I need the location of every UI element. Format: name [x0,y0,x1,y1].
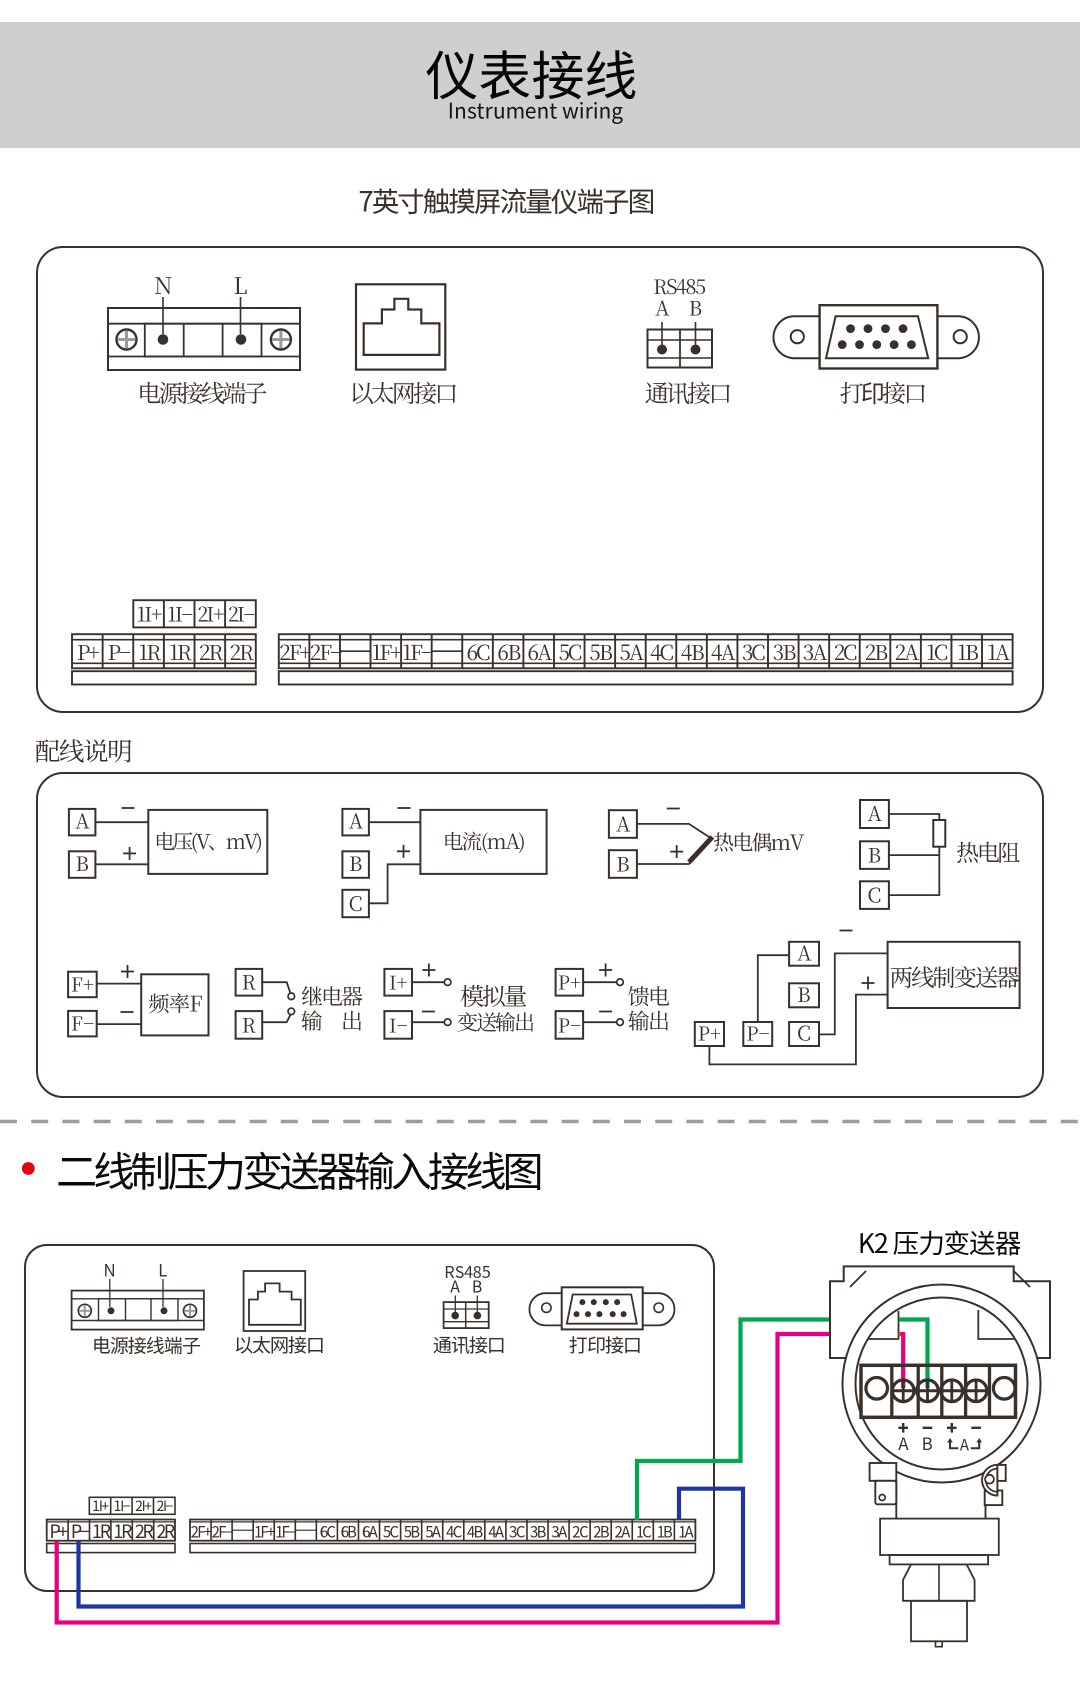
svg-text:1C: 1C [926,637,948,667]
svg-text:P+: P+ [77,637,100,667]
svg-text:C: C [867,880,881,909]
svg-text:4C: 4C [650,637,673,667]
svg-text:P+: P+ [558,969,581,996]
svg-text:2B: 2B [593,1522,610,1543]
svg-text:P+: P+ [49,1518,68,1544]
svg-text:4B: 4B [681,637,703,667]
svg-text:L: L [158,1257,168,1282]
svg-text:5B: 5B [403,1522,421,1543]
svg-text:P−: P− [107,637,130,667]
svg-text:A: A [797,938,812,967]
svg-text:6B: 6B [341,1522,358,1543]
svg-text:5A: 5A [619,637,644,667]
svg-text:A: A [655,293,670,322]
svg-text:A: A [449,1274,460,1298]
svg-text:通讯接口: 通讯接口 [433,1331,505,1358]
svg-text:3B: 3B [530,1522,547,1543]
svg-text:3C: 3C [742,637,765,667]
svg-text:F−: F− [71,1010,94,1037]
svg-text:变送输出: 变送输出 [457,1007,534,1037]
svg-text:2C: 2C [572,1522,588,1543]
svg-text:B: B [922,1430,933,1455]
svg-text:3A: 3A [803,637,827,667]
svg-text:C: C [797,1018,811,1047]
svg-text:2B: 2B [864,637,887,667]
svg-text:电源接线端子: 电源接线端子 [137,374,267,409]
svg-text:B: B [472,1274,483,1298]
svg-text:2I−: 2I− [157,1496,173,1516]
svg-text:4B: 4B [467,1522,484,1543]
svg-text:1C: 1C [636,1522,652,1543]
svg-text:两线制变送器: 两线制变送器 [890,959,1019,993]
svg-text:出: 出 [341,1005,363,1036]
svg-text:热电阻: 热电阻 [956,835,1020,868]
svg-text:L: L [233,268,247,301]
svg-text:1F−: 1F− [402,637,433,667]
svg-text:A: A [349,806,364,835]
svg-text:电流(mA): 电流(mA) [443,825,525,855]
svg-text:4A: 4A [711,637,735,667]
svg-text:N: N [154,268,172,301]
svg-text:以太网接口: 以太网接口 [350,374,457,409]
svg-text:电源接线端子: 电源接线端子 [92,1332,201,1359]
svg-text:2C: 2C [834,637,858,667]
svg-text:2F−: 2F− [309,637,342,667]
svg-text:R: R [242,967,256,996]
svg-text:2I+: 2I+ [135,1496,151,1516]
svg-text:配线说明: 配线说明 [35,733,131,769]
svg-text:通讯接口: 通讯接口 [645,374,731,409]
svg-text:F+: F+ [71,971,94,998]
svg-text:A: A [897,1430,908,1455]
svg-text:2F+: 2F+ [279,637,312,667]
svg-text:2A: 2A [894,637,919,667]
svg-text:6C: 6C [320,1522,336,1543]
svg-text:热电偶mV: 热电偶mV [713,827,804,857]
svg-text:1I+: 1I+ [92,1496,108,1516]
svg-text:输出: 输出 [628,1005,669,1036]
svg-text:2R: 2R [229,637,254,667]
svg-text:频率F: 频率F [148,988,202,1019]
svg-text:P−: P− [71,1518,90,1544]
svg-text:1F−: 1F− [275,1522,296,1543]
svg-text:3C: 3C [509,1522,525,1543]
svg-text:1B: 1B [657,1522,674,1543]
svg-text:5C: 5C [558,637,582,667]
svg-text:输: 输 [301,1005,323,1036]
svg-text:1R: 1R [138,637,161,667]
svg-text:3B: 3B [773,637,795,667]
svg-text:5C: 5C [382,1522,399,1543]
svg-text:A: A [867,798,882,827]
svg-text:打印接口: 打印接口 [569,1331,641,1358]
svg-text:以太网接口: 以太网接口 [234,1331,324,1358]
svg-text:P+: P+ [698,1020,721,1047]
svg-text:I−: I− [389,1012,408,1039]
svg-text:2F−: 2F− [212,1522,233,1543]
svg-text:C: C [349,888,363,917]
svg-text:1I+: 1I+ [137,599,162,628]
svg-text:B: B [75,848,88,877]
svg-text:1I−: 1I− [114,1496,130,1516]
svg-text:P−: P− [746,1020,769,1047]
svg-text:P−: P− [558,1012,581,1039]
svg-text:Instrument wiring: Instrument wiring [448,96,623,126]
svg-text:N: N [104,1257,116,1282]
svg-text:6A: 6A [527,637,552,667]
svg-text:4C: 4C [446,1522,462,1543]
svg-text:1R: 1R [169,637,192,667]
svg-text:电压(V、mV): 电压(V、mV) [154,825,261,855]
svg-text:B: B [349,848,362,877]
svg-text:R: R [242,1010,256,1039]
svg-text:B: B [868,840,881,869]
svg-text:I+: I+ [389,969,408,996]
svg-text:2F+: 2F+ [191,1522,213,1543]
svg-text:A: A [960,1435,970,1456]
svg-text:5B: 5B [589,637,612,667]
svg-text:7英寸触摸屏流量仪端子图: 7英寸触摸屏流量仪端子图 [358,180,653,220]
svg-text:1I−: 1I− [167,599,192,628]
svg-text:1B: 1B [957,637,978,667]
svg-text:B: B [616,849,629,878]
svg-text:打印接口: 打印接口 [840,374,926,409]
svg-text:A: A [616,809,631,838]
svg-text:B: B [689,293,702,322]
svg-text:2I−: 2I− [228,599,255,628]
svg-text:2I+: 2I+ [197,599,224,628]
svg-text:二线制压力变送器输入接线图: 二线制压力变送器输入接线图 [56,1139,540,1199]
svg-text:2R: 2R [199,637,224,667]
svg-text:1A: 1A [987,637,1010,667]
svg-text:6C: 6C [467,637,491,667]
svg-text:K2 压力变送器: K2 压力变送器 [858,1222,1021,1261]
svg-text:1F+: 1F+ [254,1522,276,1543]
svg-text:6B: 6B [497,637,520,667]
svg-text:A: A [75,806,90,835]
svg-text:B: B [797,979,810,1008]
svg-text:1F+: 1F+ [371,637,402,667]
